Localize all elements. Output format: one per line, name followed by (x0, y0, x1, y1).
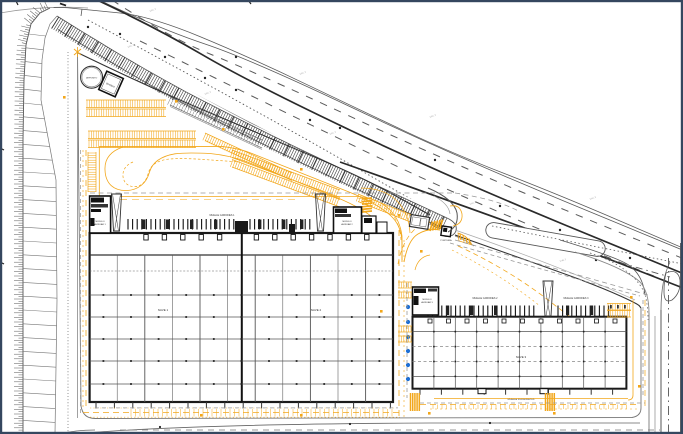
svg-text:MUELLE CAMIONES 3: MUELLE CAMIONES 3 (564, 297, 590, 300)
svg-text:AUXILIAR 1: AUXILIAR 1 (94, 223, 106, 226)
svg-text:MUELLE CAMIONES 1: MUELLE CAMIONES 1 (210, 214, 236, 217)
svg-text:AUXILIAR 3: AUXILIAR 3 (421, 301, 433, 304)
svg-text:AUXILIAR 2: AUXILIAR 2 (341, 223, 353, 226)
svg-text:NAVE 2: NAVE 2 (311, 308, 322, 312)
svg-text:NAVE 3: NAVE 3 (516, 355, 527, 359)
svg-text:MODULO: MODULO (342, 221, 352, 223)
svg-text:PORTERIA: PORTERIA (440, 239, 452, 242)
svg-text:NAVE 1: NAVE 1 (158, 308, 169, 312)
svg-text:MUELLE CAMIONES 2: MUELLE CAMIONES 2 (473, 297, 499, 300)
svg-text:DEPOSITO: DEPOSITO (86, 77, 98, 79)
svg-text:MODULO: MODULO (422, 299, 432, 301)
svg-text:MODULO: MODULO (95, 221, 105, 223)
